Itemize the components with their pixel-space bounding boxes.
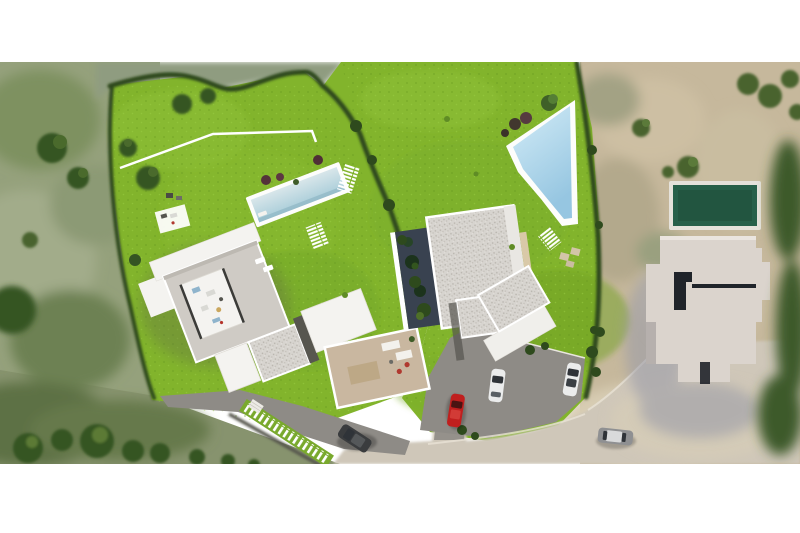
photo-area	[0, 62, 800, 472]
neighbour-bottom-slot	[700, 362, 710, 384]
letterbox-bottom	[0, 464, 800, 533]
letterbox-top	[0, 0, 800, 62]
neighbour-house-mass	[646, 236, 770, 382]
site-plan-svg	[0, 0, 800, 533]
neighbour-side-shade	[646, 322, 656, 364]
neighbour-house	[625, 236, 770, 438]
aerial-render-canvas	[0, 0, 800, 533]
neighbour-pool-depth	[678, 190, 752, 221]
neighbour-pool	[669, 181, 761, 230]
neighbour-roof-slot	[692, 284, 756, 288]
neighbour-roof-highlight	[660, 236, 756, 240]
